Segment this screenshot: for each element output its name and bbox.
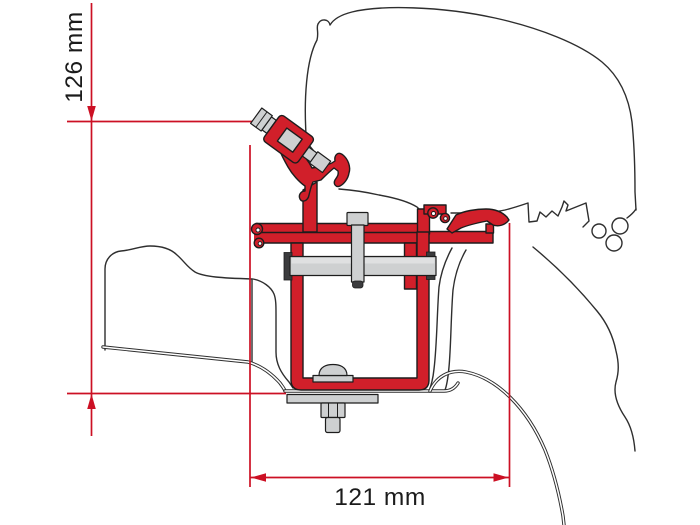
mounting-plate <box>287 395 378 404</box>
dimension-lines <box>67 3 510 487</box>
vertical-bolt-end <box>353 281 364 288</box>
rail-top-flange <box>256 224 428 233</box>
rear-arch-curve-inner <box>430 371 564 525</box>
rear-hook-curl-1-hole <box>432 212 436 216</box>
arrow-up-icon <box>87 394 96 409</box>
roof-dome-outline <box>305 8 636 210</box>
cross-member-bottom-edge-inner <box>103 347 285 391</box>
arrow-right-icon <box>494 473 509 482</box>
vertical-bolt-head <box>347 213 368 226</box>
horizontal-dimension-label: 121 mm <box>334 484 426 511</box>
cross-member-bottom-edge <box>103 347 285 391</box>
rear-hook-curl-2-hole <box>444 217 448 221</box>
drawing-canvas: 126 mm 121 mm <box>0 0 700 525</box>
rear-hook-assembly <box>418 205 510 234</box>
carriage-bolt-dome <box>319 365 347 376</box>
rail-profile-end <box>627 209 636 218</box>
rail-profile-circle-1 <box>592 224 606 238</box>
adapter-bracket <box>247 103 509 433</box>
bolt-thread-end <box>326 418 341 433</box>
arrow-left-icon <box>251 473 266 482</box>
pillar-line-2 <box>445 250 466 390</box>
cross-member-flange <box>253 279 293 388</box>
rail-left-curl-bottom-hole <box>258 242 262 246</box>
rail-profile-circle-2 <box>612 218 628 234</box>
adapter-bracket-technical-drawing: 126 mm 121 mm <box>0 0 700 525</box>
arrow-down-icon <box>87 106 96 121</box>
cross-member-outline <box>105 246 252 362</box>
rear-body-wavy-line <box>533 247 635 451</box>
rail-profile-circle-3 <box>606 235 622 251</box>
rail-bottom-bar <box>256 232 493 244</box>
hex-nut <box>321 403 345 418</box>
vertical-dimension-label: 126 mm <box>61 11 88 103</box>
carriage-bolt-washer <box>313 376 353 383</box>
rail-left-curl-top-hole <box>256 228 260 232</box>
vertical-bolt-shaft <box>352 225 365 282</box>
